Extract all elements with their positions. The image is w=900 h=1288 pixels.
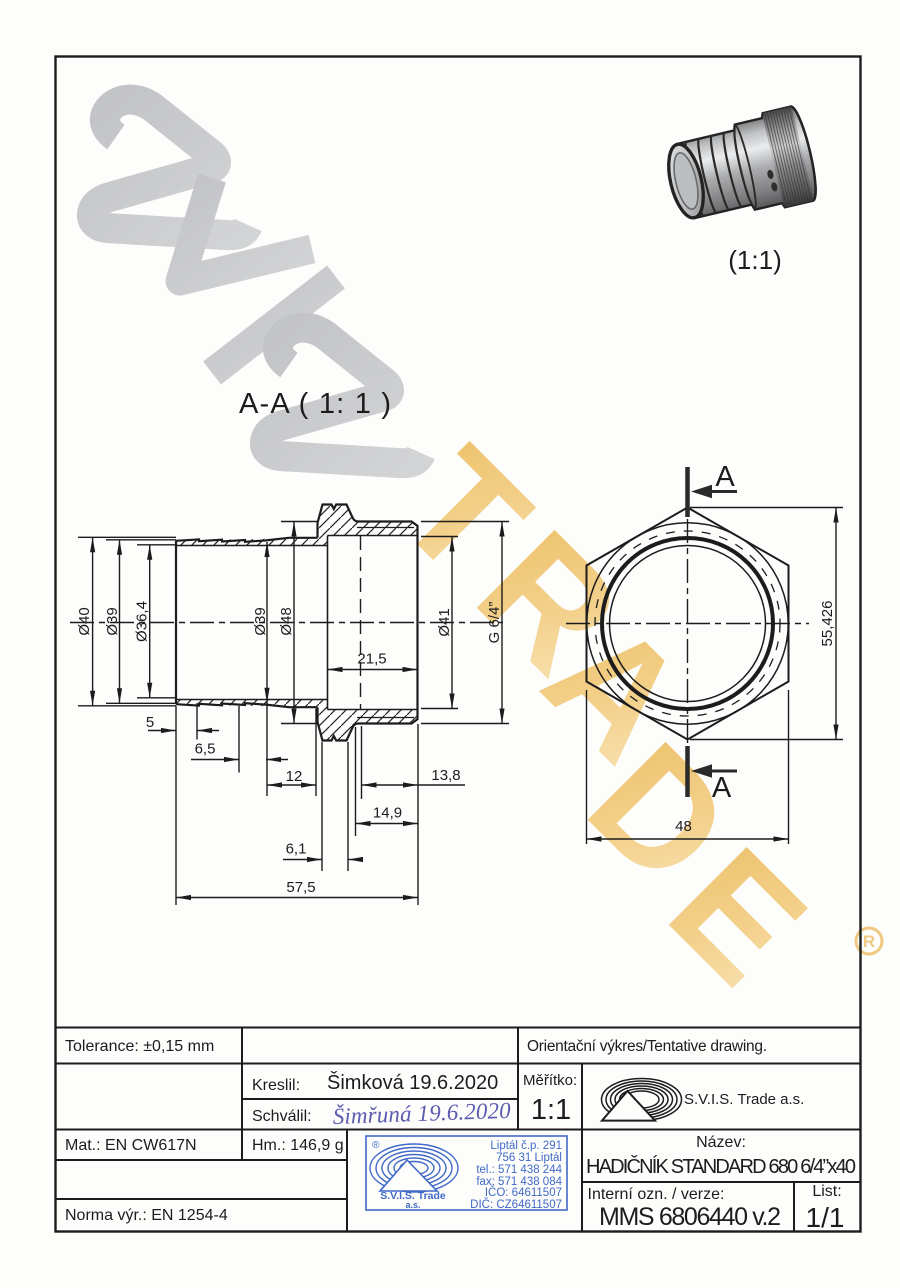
svg-text:14,9: 14,9 [373, 805, 402, 822]
svg-text:S.V.I.S. Trade a.s.: S.V.I.S. Trade a.s. [684, 1091, 804, 1108]
svg-text:Šimková 19.6.2020: Šimková 19.6.2020 [327, 1071, 498, 1094]
svg-text:Ø39: Ø39 [104, 607, 121, 635]
svg-text:12: 12 [286, 768, 303, 785]
svg-text:13,8: 13,8 [431, 767, 460, 784]
svg-text:A: A [712, 772, 732, 804]
svg-text:tel.: 571 438 244: tel.: 571 438 244 [476, 1164, 562, 1176]
svg-text:5: 5 [146, 714, 154, 731]
svg-text:List:: List: [812, 1183, 841, 1200]
svg-text:Liptál č.p. 291: Liptál č.p. 291 [490, 1140, 562, 1152]
svg-text:Kreslil:: Kreslil: [252, 1077, 300, 1094]
svg-text:756 31 Liptál: 756 31 Liptál [496, 1152, 562, 1164]
svg-text:Ø40: Ø40 [76, 607, 93, 635]
svg-text:a.s.: a.s. [405, 1200, 420, 1210]
svg-text:Mat.: EN CW617N: Mat.: EN CW617N [65, 1137, 197, 1154]
svg-text:6,5: 6,5 [195, 741, 216, 758]
svg-text:57,5: 57,5 [286, 879, 315, 896]
svg-text:Orientační výkres/Tentative dr: Orientační výkres/Tentative drawing. [527, 1038, 767, 1055]
svg-text:Měřítko:: Měřítko: [523, 1072, 577, 1089]
svg-text:21,5: 21,5 [357, 651, 386, 668]
svg-text:1:1: 1:1 [531, 1094, 571, 1126]
svg-text:A-A ( 1: 1 ): A-A ( 1: 1 ) [239, 388, 391, 420]
svg-text:A: A [715, 461, 735, 493]
svg-text:R: R [863, 932, 875, 951]
svg-text:Norma výr.: EN 1254-4: Norma výr.: EN 1254-4 [65, 1207, 228, 1224]
svg-text:®: ® [372, 1140, 380, 1151]
svg-text:48: 48 [675, 818, 692, 835]
svg-text:Ø48: Ø48 [278, 607, 295, 635]
svg-text:Hm.: 146,9 g: Hm.: 146,9 g [252, 1137, 344, 1154]
svg-text:(1:1): (1:1) [728, 245, 781, 275]
svg-text:55,426: 55,426 [819, 601, 836, 647]
svg-text:Schválil:: Schválil: [252, 1108, 312, 1125]
svg-text:Interní ozn. / verze:: Interní ozn. / verze: [588, 1186, 725, 1203]
svg-text:Ø39: Ø39 [252, 607, 269, 635]
svg-text:Ø36,4: Ø36,4 [134, 601, 151, 642]
svg-text:Ø41: Ø41 [436, 608, 453, 636]
svg-text:IČO: 64611507: IČO: 64611507 [485, 1186, 562, 1199]
svg-text:G 6/4”: G 6/4” [486, 602, 503, 644]
svg-text:HADIČNÍK STANDARD 680 6/4”x40: HADIČNÍK STANDARD 680 6/4”x40 [586, 1155, 856, 1178]
svg-text:Tolerance: ±0,15 mm: Tolerance: ±0,15 mm [65, 1038, 214, 1055]
svg-text:Název:: Název: [696, 1134, 746, 1151]
svg-text:6,1: 6,1 [286, 841, 307, 858]
svg-text:MMS 6806440 v.2: MMS 6806440 v.2 [599, 1203, 781, 1231]
svg-text:DIČ: CZ64611507: DIČ: CZ64611507 [470, 1198, 562, 1211]
svg-text:1/1: 1/1 [806, 1202, 845, 1233]
